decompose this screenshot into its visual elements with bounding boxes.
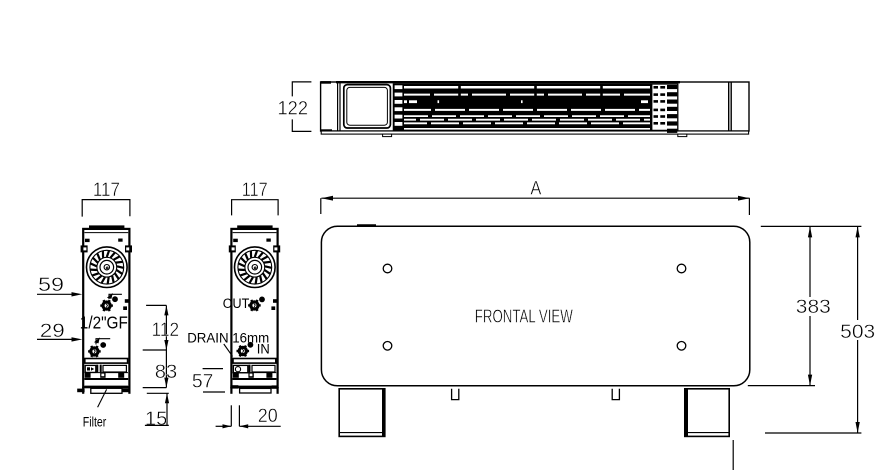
svg-text:83: 83 — [155, 361, 178, 383]
svg-text:Filter: Filter — [83, 415, 107, 430]
svg-text:29: 29 — [40, 320, 65, 342]
svg-text:117: 117 — [93, 179, 120, 201]
svg-text:112: 112 — [152, 319, 180, 341]
svg-text:A: A — [530, 177, 541, 199]
svg-text:57: 57 — [192, 371, 214, 393]
svg-text:383: 383 — [796, 296, 831, 318]
svg-text:15: 15 — [145, 408, 168, 430]
svg-text:OUT: OUT — [223, 296, 250, 311]
svg-text:59: 59 — [38, 274, 64, 296]
svg-text:1/2"GF: 1/2"GF — [80, 313, 128, 333]
svg-text:122: 122 — [278, 98, 309, 120]
svg-text:117: 117 — [242, 179, 268, 201]
svg-text:FRONTAL VIEW: FRONTAL VIEW — [475, 306, 573, 327]
svg-text:503: 503 — [840, 321, 875, 343]
svg-text:20: 20 — [258, 405, 278, 427]
svg-text:IN: IN — [257, 341, 270, 356]
